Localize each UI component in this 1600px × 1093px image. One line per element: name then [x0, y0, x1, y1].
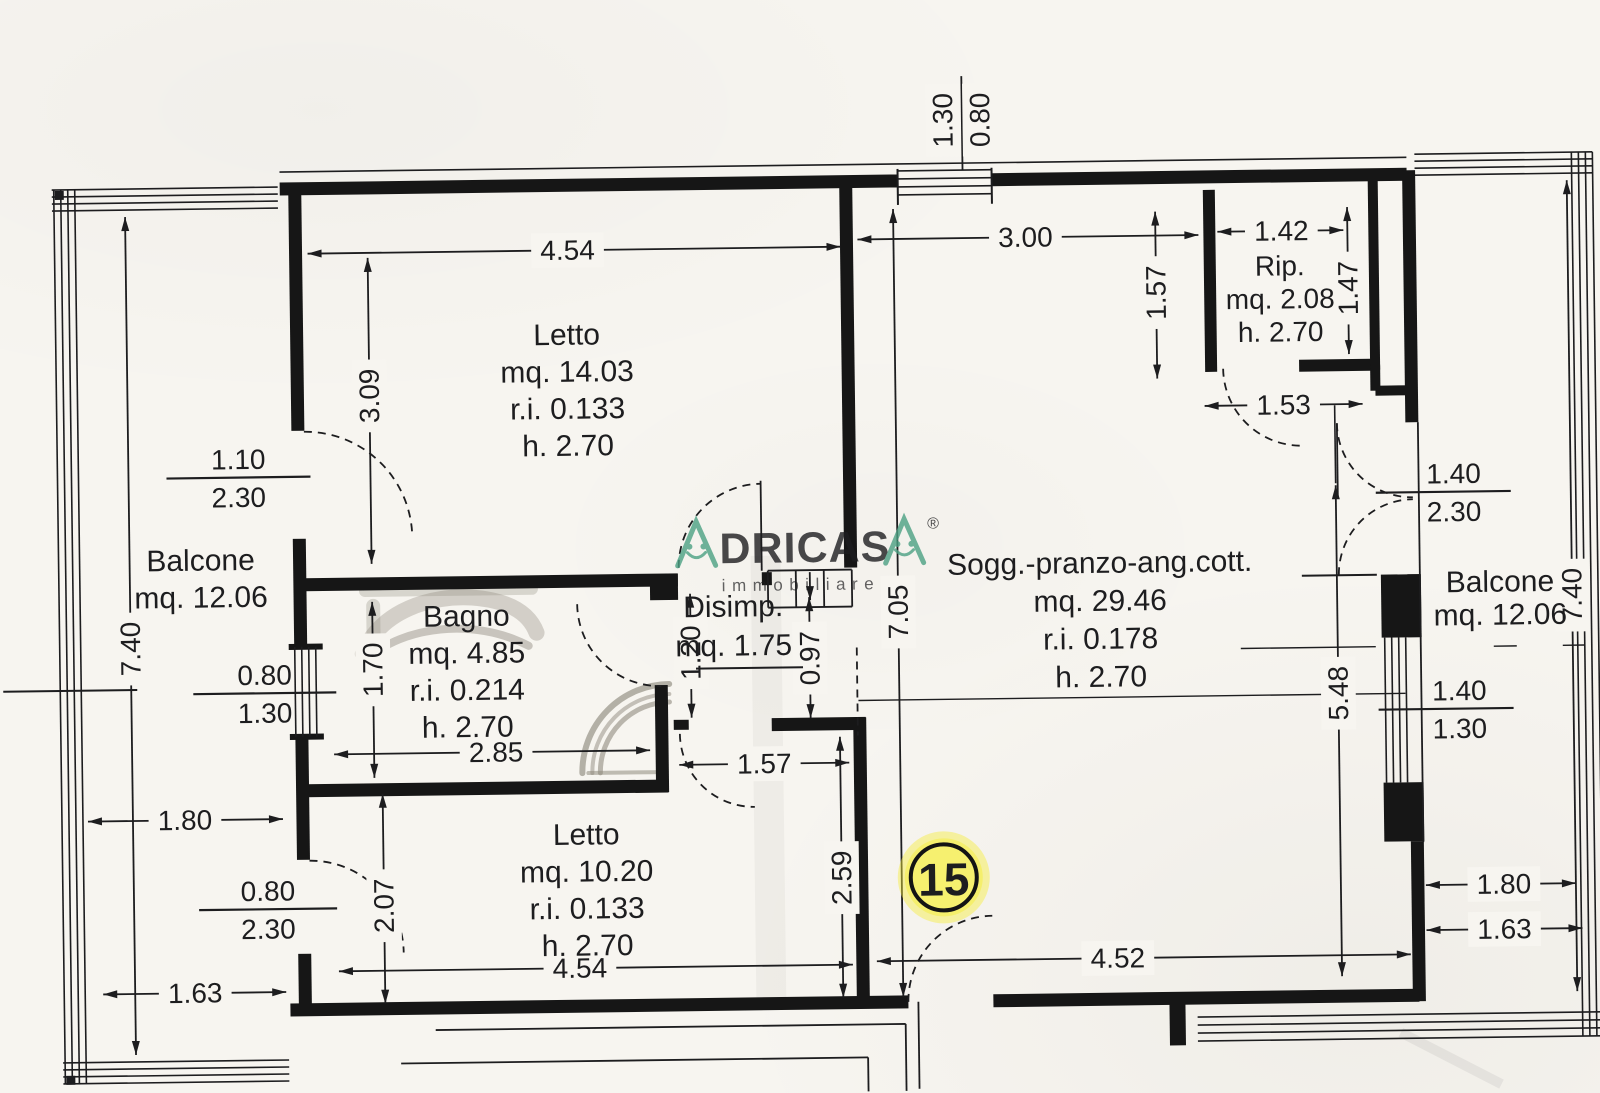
- wall-pier: [290, 734, 324, 740]
- room-label: Balcone: [146, 544, 255, 578]
- context-line: [918, 1002, 919, 1089]
- door-leaf: [1337, 423, 1338, 496]
- door-swing: [1337, 422, 1413, 498]
- room-letto2: Lettomq. 10.20r.i. 0.133h. 2.70: [519, 818, 654, 964]
- wall-segment: [1177, 998, 1178, 1045]
- dim-label: 2.07: [368, 878, 400, 933]
- dim-label: 1.30: [927, 93, 959, 148]
- window-glazing: [898, 178, 992, 179]
- logo-a-triangle: [677, 521, 716, 565]
- fraction-bar: [193, 692, 336, 694]
- room-label: mq. 1.75: [675, 629, 792, 664]
- dim-label-group: 1.47: [1330, 251, 1366, 324]
- room-label: h. 2.70: [1238, 316, 1324, 348]
- floor-plan-canvas: 4.543.001.421.532.851.574.544.521.801.63…: [0, 0, 1600, 1093]
- railing-line: [75, 190, 87, 1084]
- room-label: h. 2.70: [522, 429, 614, 463]
- room-label: h. 2.70: [1055, 660, 1147, 694]
- dim-label: 3.09: [354, 368, 386, 423]
- scanned-floor-plan: 4.543.001.421.532.851.574.544.521.801.63…: [0, 0, 1600, 1093]
- dim-label: 1.40: [1432, 675, 1487, 707]
- facade-line: [279, 157, 1406, 172]
- room-label: mq. 12.06: [1433, 598, 1567, 633]
- dim-label-group: 1.42: [1245, 213, 1318, 249]
- wall-segment: [661, 685, 662, 792]
- logo-text: DRICAS: [719, 523, 890, 573]
- railing-line: [1414, 152, 1592, 154]
- dim-label: 0.97: [794, 631, 826, 686]
- railing-line: [63, 1060, 289, 1063]
- room-label: r.i. 0.133: [510, 392, 626, 427]
- dim-label-group: 7.40: [113, 612, 149, 685]
- dim-label-group: 3.09: [352, 359, 388, 432]
- window-glazing: [898, 194, 992, 195]
- railing-line: [52, 194, 278, 197]
- room-bagno: Bagnomq. 4.85r.i. 0.214h. 2.70: [408, 599, 527, 745]
- wall-pier: [674, 720, 689, 730]
- dim-label: 4.54: [540, 234, 595, 266]
- railing-line: [63, 1081, 289, 1084]
- dim-label: 4.52: [1090, 942, 1145, 974]
- door-swing: [907, 916, 993, 1002]
- dim-label: 1.57: [737, 748, 792, 780]
- room-label: mq. 4.85: [408, 636, 525, 671]
- dim-label: 0.80: [964, 92, 996, 147]
- dim-label-group: 1.80: [1467, 866, 1540, 902]
- wall-segment: [1409, 170, 1412, 422]
- context-line: [906, 1024, 907, 1091]
- wall-segment: [992, 174, 1407, 179]
- badge-number: 15: [918, 853, 970, 906]
- room-label: h. 2.70: [542, 929, 634, 963]
- dim-label-group: 1.70: [355, 633, 391, 706]
- dim-label: 1.63: [168, 977, 223, 1009]
- room-label: Balcone: [1446, 565, 1555, 599]
- railing-line: [1592, 152, 1600, 1036]
- room-label: Letto: [533, 318, 600, 352]
- axis-line: [1241, 647, 1376, 649]
- dim-label-group: 7.05: [880, 575, 916, 648]
- railing-post: [55, 191, 64, 200]
- railing-line: [52, 201, 278, 204]
- wall-segment: [280, 181, 898, 189]
- room-label: h. 2.70: [422, 711, 514, 745]
- dim-label: 1.80: [158, 804, 213, 836]
- dim-label-group: 1.57: [728, 746, 801, 782]
- dim-label: 0.80: [237, 659, 292, 691]
- window-glazing: [898, 170, 992, 171]
- wall-segment: [1299, 365, 1379, 366]
- dim-label: 2.59: [826, 850, 858, 905]
- axis-line: [3, 690, 137, 692]
- context-line: [436, 1024, 906, 1030]
- room-label: mq. 10.20: [520, 855, 654, 890]
- plan-drawing: 4.543.001.421.532.851.574.544.521.801.63…: [0, 68, 1600, 1093]
- dim-label-group: 1.63: [159, 975, 232, 1011]
- dim-label: 1.70: [357, 642, 389, 697]
- wall-pier: [1381, 574, 1422, 638]
- railing-line: [61, 190, 73, 1084]
- dim-label: 7.05: [882, 585, 914, 640]
- railing-line: [63, 1067, 289, 1070]
- fraction-bar: [166, 477, 310, 479]
- railing-line: [52, 187, 278, 190]
- wall-segment: [294, 580, 678, 585]
- dim-label-group: 1.30: [925, 84, 961, 157]
- room-label: r.i. 0.133: [529, 892, 645, 927]
- railing-line: [63, 1074, 289, 1077]
- room-balcone-sx: Balconemq. 12.06: [134, 544, 268, 616]
- dim-label: 2.30: [211, 482, 266, 514]
- room-balcone-dx: Balconemq. 12.06: [1433, 565, 1567, 633]
- room-label: mq. 14.03: [500, 355, 634, 390]
- logo-registered: ®: [927, 515, 939, 532]
- dim-label: 1.57: [1140, 265, 1172, 320]
- dim-label-group: 0.97: [792, 622, 828, 695]
- room-soggiorno: Sogg.-pranzo-ang.cott.mq. 29.46r.i. 0.17…: [947, 545, 1254, 696]
- railing-line: [1415, 166, 1593, 168]
- door-swing: [577, 603, 661, 687]
- dim-label-group: 1.57: [1138, 256, 1174, 329]
- room-label: Bagno: [423, 600, 510, 634]
- dim-extension: [1335, 405, 1336, 483]
- room-label: mq. 29.46: [1033, 584, 1167, 619]
- dim-label: 5.48: [1323, 666, 1355, 721]
- dim-label: 1.10: [211, 444, 266, 476]
- room-label: Sogg.-pranzo-ang.cott.: [947, 545, 1253, 582]
- building-context: [400, 1002, 919, 1093]
- dim-label: 1.30: [1432, 713, 1487, 745]
- label-underline: [696, 667, 803, 668]
- railing-line: [1414, 159, 1592, 161]
- dim-label: 3.00: [998, 221, 1053, 253]
- logo-a-triangle: [885, 519, 924, 563]
- dim-label: 1.53: [1256, 389, 1311, 421]
- railing-line: [1198, 1012, 1600, 1017]
- dim-label: 1.80: [1476, 868, 1531, 900]
- fraction-bar: [1376, 491, 1511, 493]
- railing-line: [1415, 173, 1593, 175]
- railing-line: [1198, 1020, 1600, 1025]
- dim-label-group: 4.52: [1081, 940, 1154, 976]
- door-swing: [1338, 499, 1414, 575]
- dim-label-group: 2.07: [366, 869, 402, 942]
- room-label: r.i. 0.178: [1043, 622, 1159, 657]
- railing-line: [68, 190, 80, 1084]
- room-label: mq. 2.08: [1226, 283, 1335, 315]
- window-glazing: [898, 186, 992, 187]
- fraction-bar: [199, 908, 337, 910]
- dim-label: 2.30: [1427, 496, 1482, 528]
- wall-segment: [299, 539, 300, 647]
- logo-a-icon: [885, 519, 924, 563]
- dim-label-group: 4.54: [531, 232, 604, 268]
- dim-label-group: 2.59: [824, 841, 860, 914]
- dim-label: 1.42: [1254, 215, 1309, 247]
- door-swing: [857, 648, 858, 736]
- railing-line: [54, 190, 66, 1084]
- dim-label-group: 1.80: [148, 802, 221, 838]
- wall-segment: [1417, 841, 1419, 1001]
- room-label: mq. 12.06: [134, 581, 268, 616]
- dim-label-group: 1.63: [1468, 911, 1541, 947]
- wall-pier: [289, 644, 323, 650]
- scan-fold: [1401, 1031, 1502, 1085]
- room-label: Rip.: [1255, 250, 1305, 282]
- logo-subtitle: immobiliare: [722, 574, 881, 595]
- railing-line: [52, 208, 278, 211]
- logo-a-smile: [688, 552, 706, 557]
- wall-segment: [302, 737, 304, 860]
- dim-label: 2.30: [241, 913, 296, 945]
- unit-number-badge: 15: [897, 831, 990, 924]
- dim-label: 1.63: [1477, 913, 1532, 945]
- dim-label: 1.30: [238, 697, 293, 729]
- pencil-stroke: [588, 772, 662, 773]
- dim-label-group: 0.80: [962, 83, 998, 156]
- dim-label: 1.47: [1332, 261, 1364, 316]
- railing-line: [1198, 1028, 1600, 1033]
- wall-segment: [1373, 175, 1376, 370]
- wall-segment: [290, 1002, 908, 1010]
- room-label: r.i. 0.214: [410, 673, 526, 708]
- wall-pier: [1384, 782, 1425, 842]
- dim-label-group: 1.53: [1247, 387, 1320, 423]
- wall-segment: [993, 995, 1419, 1001]
- wall-segment: [860, 717, 864, 1002]
- door-swing: [304, 430, 412, 538]
- dim-label-group: 5.48: [1321, 657, 1357, 730]
- wall-pier: [650, 574, 678, 600]
- wall-segment: [846, 178, 851, 568]
- balcony-railings: [51, 152, 1600, 1085]
- dim-label: 0.80: [240, 875, 295, 907]
- context-line: [401, 1057, 868, 1063]
- logo-a-icon: [677, 521, 716, 565]
- dim-label: 1.40: [1426, 458, 1481, 490]
- wall-segment: [772, 723, 866, 724]
- wall-segment: [1209, 190, 1211, 372]
- room-rip: Rip.mq. 2.08h. 2.70: [1225, 250, 1335, 348]
- dim-label-group: 3.00: [989, 219, 1062, 255]
- room-letto1: Lettomq. 14.03r.i. 0.133h. 2.70: [500, 318, 635, 464]
- dim-label: 7.40: [115, 622, 147, 677]
- wall-segment: [295, 185, 298, 431]
- wall-segment: [297, 786, 669, 791]
- railing-post: [66, 1076, 75, 1085]
- room-label: Letto: [553, 818, 620, 852]
